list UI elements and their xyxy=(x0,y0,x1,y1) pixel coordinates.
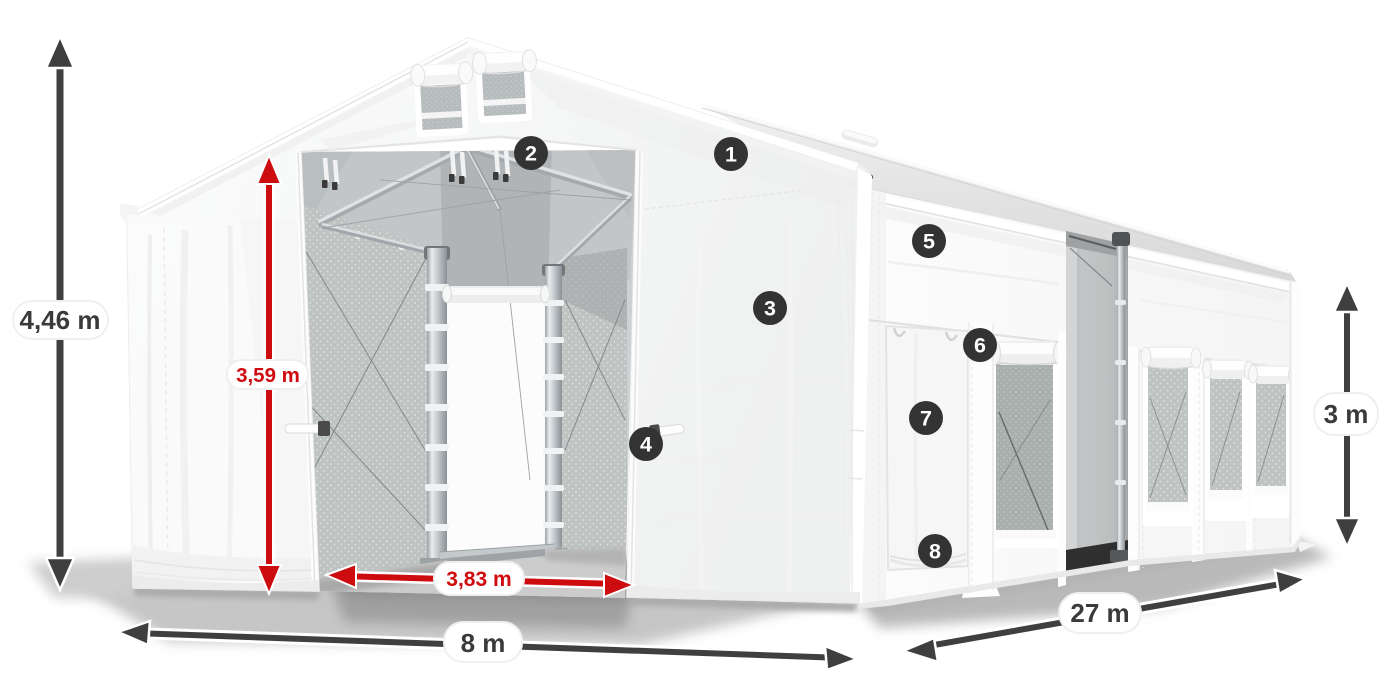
svg-text:3,59 m: 3,59 m xyxy=(236,364,300,387)
svg-text:8 m: 8 m xyxy=(461,628,506,658)
svg-text:3: 3 xyxy=(764,297,776,321)
svg-text:3 m: 3 m xyxy=(1324,399,1369,429)
svg-text:4: 4 xyxy=(640,433,652,457)
svg-text:5: 5 xyxy=(923,230,935,254)
svg-text:8: 8 xyxy=(929,540,941,564)
svg-text:6: 6 xyxy=(974,334,986,358)
svg-text:27 m: 27 m xyxy=(1070,598,1129,628)
svg-text:2: 2 xyxy=(525,142,537,166)
svg-text:7: 7 xyxy=(920,407,932,431)
svg-text:4,46 m: 4,46 m xyxy=(20,305,101,335)
svg-text:3,83 m: 3,83 m xyxy=(446,568,511,591)
svg-text:1: 1 xyxy=(725,143,737,167)
